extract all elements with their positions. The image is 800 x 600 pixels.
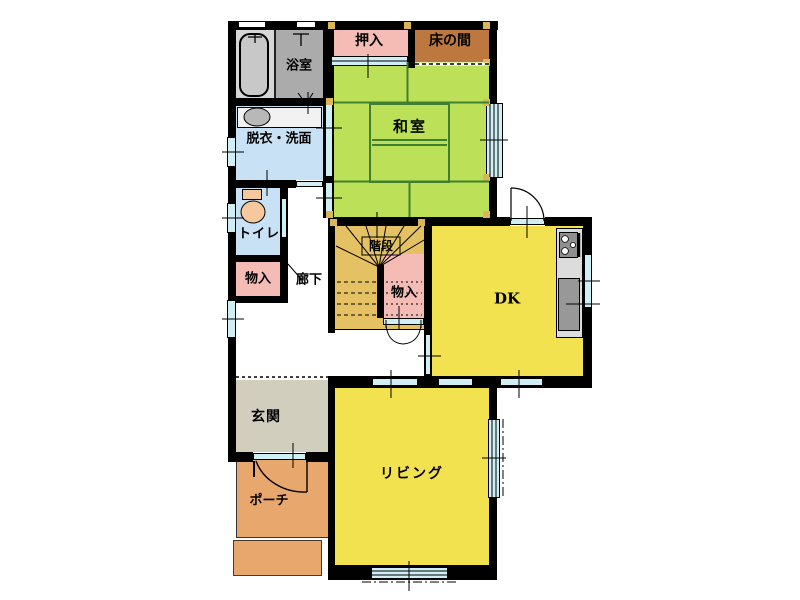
kitchen-stove [559, 232, 578, 258]
toilet-tank [242, 189, 262, 200]
label-living: リビング [380, 467, 444, 481]
back-door-sill [510, 218, 545, 225]
floor-plan: 浴室 脱衣・洗面 トイレ 物入 廊下 押入 床の間 和室 階段 物入 DK 玄関… [0, 0, 800, 600]
window-washitsu-east [486, 103, 503, 178]
pillar [483, 22, 490, 29]
window-bath-top-1 [238, 21, 266, 28]
label-toilet: トイレ [238, 228, 280, 241]
fusuma-oshiire [331, 56, 408, 66]
label-bathroom: 浴室 [286, 60, 312, 73]
wall-bath-washroom [228, 98, 331, 106]
door-hall-living [372, 378, 418, 386]
wall-genkan-bottom-left [228, 452, 253, 462]
wall-stairs-left [328, 226, 335, 333]
label-tokonoma: 床の間 [429, 34, 471, 48]
window-toilet-left [227, 203, 236, 233]
window-dk-east [584, 254, 592, 308]
wall-storage-bottom [228, 296, 288, 303]
sliding-door-washitsu-west-2 [325, 182, 333, 214]
room-washitsu [334, 62, 489, 217]
wall-kitchen-top-east [545, 217, 592, 226]
porch-step [233, 540, 322, 576]
wall-toilet-storage [228, 255, 288, 262]
bathtub [239, 33, 269, 97]
wall-stairs-storage [377, 265, 384, 318]
pillar [326, 211, 333, 218]
label-porch: ポーチ [249, 495, 288, 508]
window-hallway-left [227, 300, 236, 338]
bath-partition-line [274, 30, 276, 98]
label-oshiire: 押入 [355, 34, 383, 48]
label-hallway: 廊下 [296, 274, 322, 287]
front-door-sill [253, 453, 306, 460]
label-washitsu: 和室 [393, 120, 427, 135]
sliding-door-washitsu-west-1 [325, 104, 333, 177]
door-toilet [281, 198, 287, 238]
label-genkan: 玄関 [251, 410, 281, 424]
window-washroom-left [227, 137, 236, 167]
kitchen-sink [558, 278, 580, 331]
pillar [483, 59, 490, 66]
window-living-south [371, 567, 448, 579]
pillar [326, 98, 333, 105]
window-dk-west [425, 334, 431, 375]
wall-genkan-bottom-right [306, 452, 335, 462]
pillar [483, 211, 490, 218]
window-living-east [488, 419, 500, 498]
wall-top [228, 21, 498, 30]
window-dk-south [500, 378, 543, 386]
window-bath-top-2 [296, 21, 316, 28]
pillar [330, 219, 337, 226]
pillar [483, 174, 490, 181]
pillar [328, 22, 335, 29]
door-washroom-hall [296, 181, 323, 187]
label-dk: DK [494, 292, 520, 307]
wall-left [228, 21, 236, 460]
door-understairs-storage-sill [383, 318, 424, 325]
label-hall-storage: 物入 [245, 273, 271, 286]
label-understairs-storage: 物入 [391, 287, 417, 300]
washroom-counter [237, 107, 322, 128]
wall-living-left [328, 381, 335, 578]
room-genkan [236, 380, 328, 452]
back-door-swing [511, 188, 544, 221]
opening-dk-living [438, 378, 473, 386]
pillar [483, 99, 490, 106]
pillar [404, 22, 411, 29]
label-washroom: 脱衣・洗面 [246, 133, 311, 146]
label-stairs: 階段 [369, 240, 393, 252]
pillar [418, 219, 425, 226]
